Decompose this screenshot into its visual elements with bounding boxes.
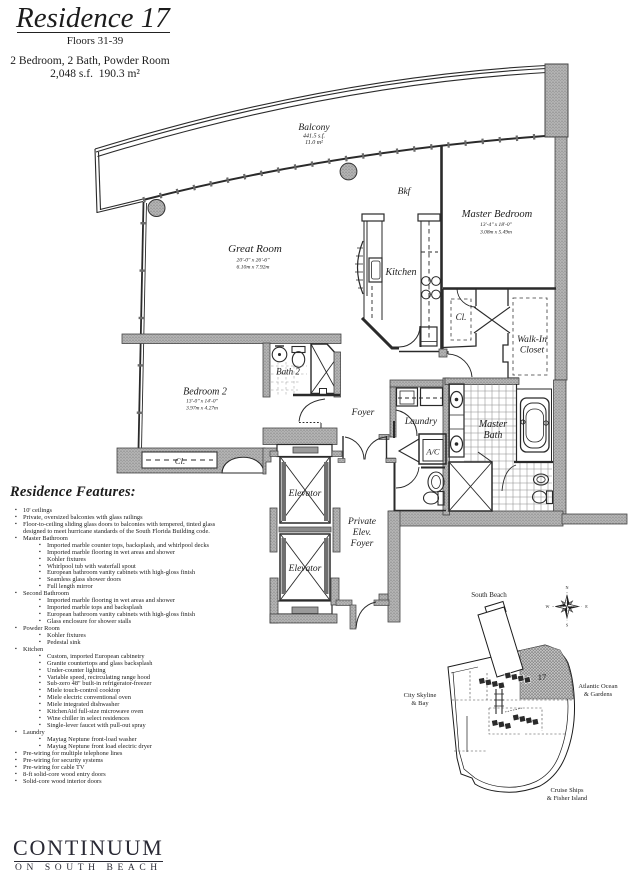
- svg-text:Cruise Ships: Cruise Ships: [550, 787, 584, 794]
- svg-text:11.0 m²: 11.0 m²: [305, 140, 323, 146]
- svg-text:& Bay: & Bay: [411, 700, 429, 707]
- svg-text:Atlantic Ocean: Atlantic Ocean: [578, 683, 618, 690]
- svg-text:17: 17: [538, 672, 547, 682]
- svg-text:Great Room: Great Room: [228, 243, 282, 255]
- svg-text:Foyer: Foyer: [350, 539, 374, 549]
- svg-text:Cl.: Cl.: [456, 312, 467, 322]
- svg-text:Bkf: Bkf: [398, 186, 412, 197]
- svg-text:13'-0" x 14'-0": 13'-0" x 14'-0": [186, 399, 218, 405]
- svg-text:13'-4" x 18'-0": 13'-4" x 18'-0": [480, 222, 512, 228]
- svg-text:Elev.: Elev.: [352, 528, 372, 538]
- svg-text:Closet: Closet: [520, 346, 545, 356]
- svg-text:N: N: [565, 585, 568, 590]
- svg-text:A/C: A/C: [425, 447, 440, 457]
- svg-text:E: E: [585, 604, 588, 609]
- svg-text:Private: Private: [347, 517, 376, 527]
- svg-text:South Beach: South Beach: [471, 591, 507, 599]
- svg-text:Master: Master: [478, 419, 507, 430]
- svg-text:441.5 s.f.: 441.5 s.f.: [303, 133, 325, 140]
- svg-text:S: S: [566, 623, 569, 628]
- svg-text:Bedroom 2: Bedroom 2: [183, 387, 227, 398]
- svg-text:Walk-In: Walk-In: [517, 335, 547, 345]
- svg-text:Balcony: Balcony: [298, 123, 330, 133]
- svg-text:Master Bedroom: Master Bedroom: [461, 209, 533, 220]
- svg-text:Laundry: Laundry: [404, 417, 438, 427]
- svg-text:6.10m x 7.92m: 6.10m x 7.92m: [237, 265, 270, 271]
- svg-text:Foyer: Foyer: [351, 408, 375, 418]
- svg-text:3.97m x 4.27m: 3.97m x 4.27m: [185, 406, 218, 412]
- svg-text:20'-0" x 26'-6": 20'-0" x 26'-6": [237, 258, 271, 264]
- svg-text:City Skyline: City Skyline: [404, 692, 437, 699]
- svg-text:W: W: [546, 604, 550, 609]
- svg-text:& Gardens: & Gardens: [584, 691, 613, 698]
- svg-text:Cl.: Cl.: [175, 456, 185, 466]
- svg-text:3.08m x 5.49m: 3.08m x 5.49m: [479, 230, 512, 236]
- svg-text:& Fisher Island: & Fisher Island: [547, 795, 588, 802]
- svg-text:Bath 2: Bath 2: [276, 367, 300, 377]
- svg-text:Kitchen: Kitchen: [384, 267, 416, 278]
- svg-text:Bath: Bath: [484, 430, 503, 441]
